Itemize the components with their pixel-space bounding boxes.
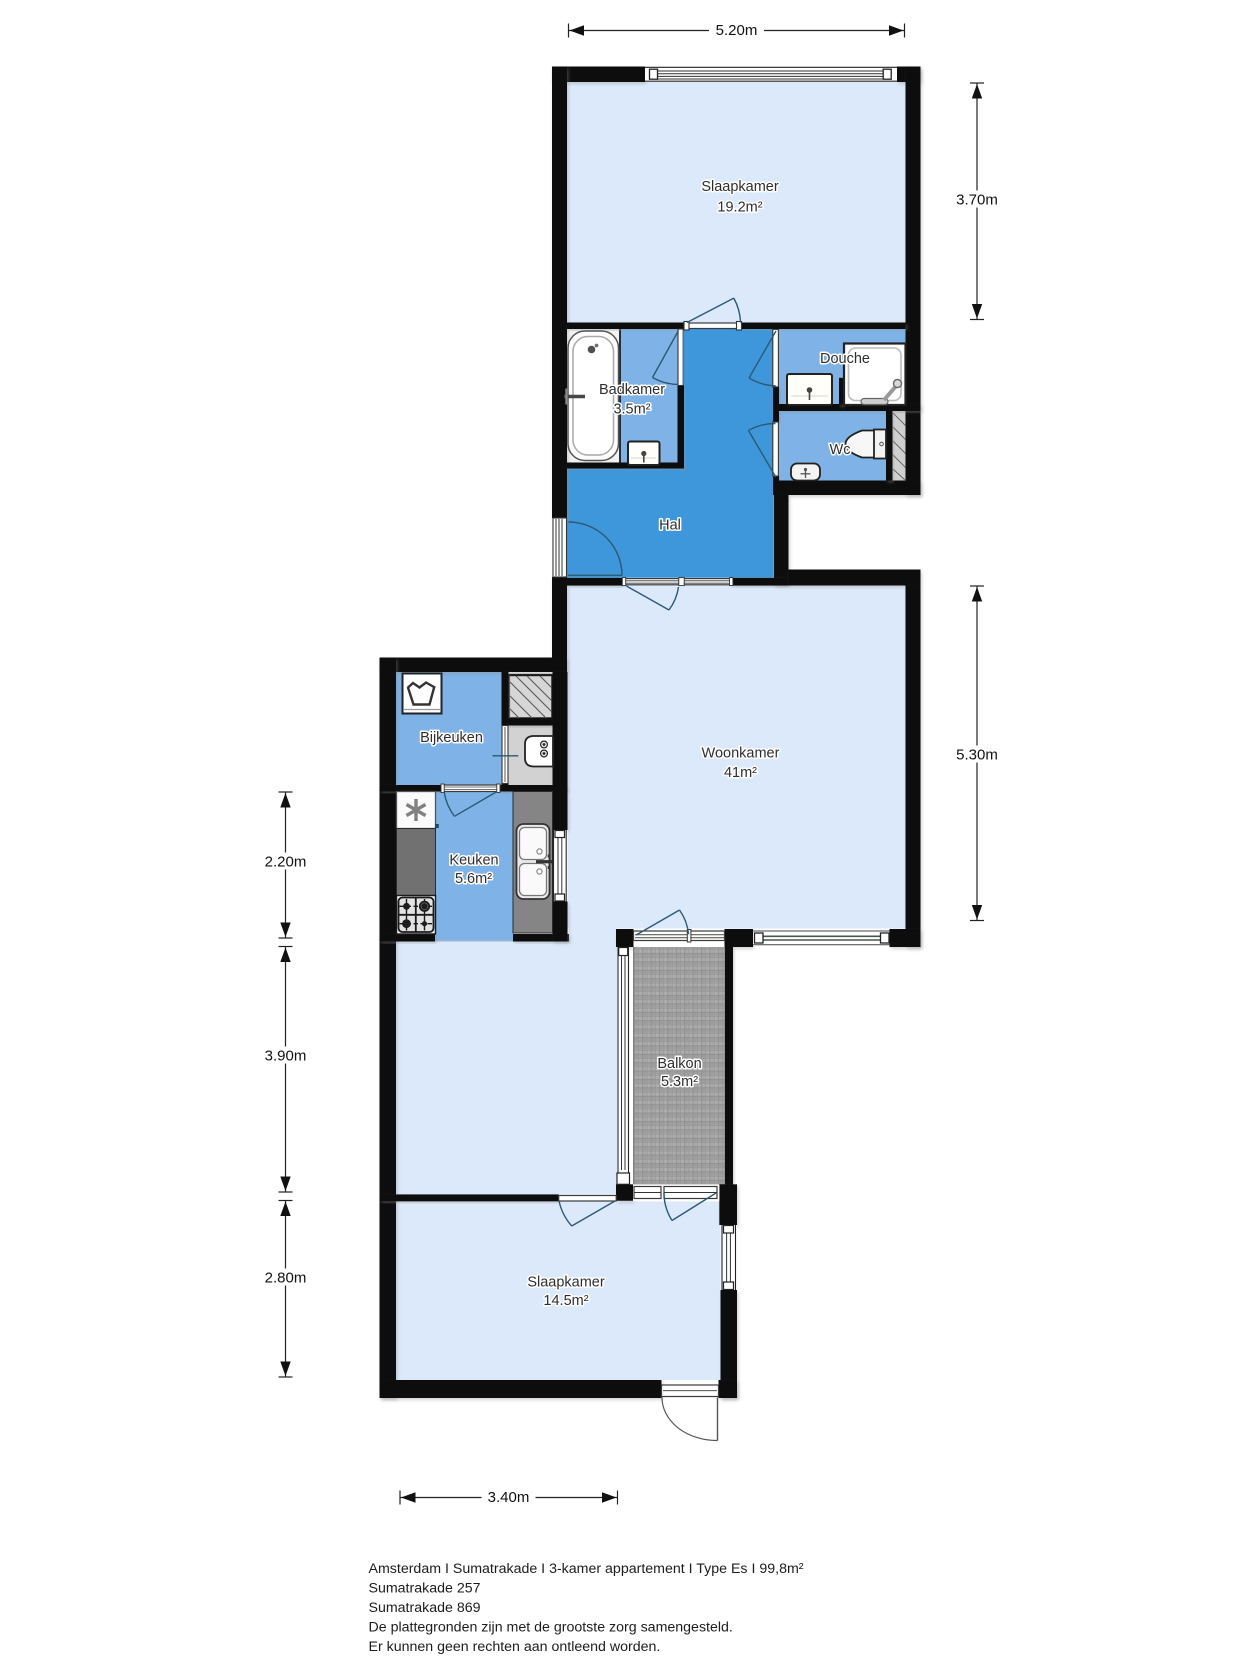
svg-text:5.20m: 5.20m bbox=[716, 22, 758, 39]
svg-text:5.3m²: 5.3m² bbox=[661, 1074, 698, 1090]
svg-text:Hal: Hal bbox=[659, 518, 681, 534]
svg-text:Balkon: Balkon bbox=[657, 1056, 701, 1072]
svg-text:3.90m: 3.90m bbox=[265, 1048, 307, 1065]
svg-text:Wc: Wc bbox=[830, 442, 851, 458]
svg-text:Slaapkamer: Slaapkamer bbox=[527, 1275, 605, 1291]
svg-text:19.2m²: 19.2m² bbox=[717, 200, 762, 216]
svg-text:5.30m: 5.30m bbox=[956, 747, 998, 764]
svg-text:41m²: 41m² bbox=[724, 765, 757, 781]
svg-text:Sumatrakade 869: Sumatrakade 869 bbox=[369, 1600, 481, 1616]
svg-text:14.5m²: 14.5m² bbox=[543, 1293, 588, 1309]
svg-text:3.5m²: 3.5m² bbox=[613, 402, 650, 418]
svg-text:2.80m: 2.80m bbox=[265, 1270, 307, 1287]
svg-text:2.20m: 2.20m bbox=[265, 854, 307, 871]
svg-text:Woonkamer: Woonkamer bbox=[702, 746, 780, 762]
svg-text:3.70m: 3.70m bbox=[956, 192, 998, 209]
svg-text:Amsterdam I Sumatrakade I 3-ka: Amsterdam I Sumatrakade I 3-kamer appart… bbox=[369, 1561, 804, 1577]
svg-text:Er kunnen geen rechten aan ont: Er kunnen geen rechten aan ontleend word… bbox=[369, 1639, 661, 1655]
svg-text:Keuken: Keuken bbox=[449, 853, 498, 869]
svg-text:5.6m²: 5.6m² bbox=[455, 871, 492, 887]
svg-text:3.40m: 3.40m bbox=[488, 1489, 530, 1506]
svg-text:Slaapkamer: Slaapkamer bbox=[701, 179, 779, 195]
svg-text:De plattegronden zijn met de g: De plattegronden zijn met de grootste zo… bbox=[369, 1620, 733, 1636]
svg-text:Badkamer: Badkamer bbox=[599, 382, 665, 398]
svg-text:Bijkeuken: Bijkeuken bbox=[420, 730, 483, 746]
svg-text:Douche: Douche bbox=[820, 351, 870, 367]
svg-text:Sumatrakade 257: Sumatrakade 257 bbox=[369, 1581, 481, 1597]
